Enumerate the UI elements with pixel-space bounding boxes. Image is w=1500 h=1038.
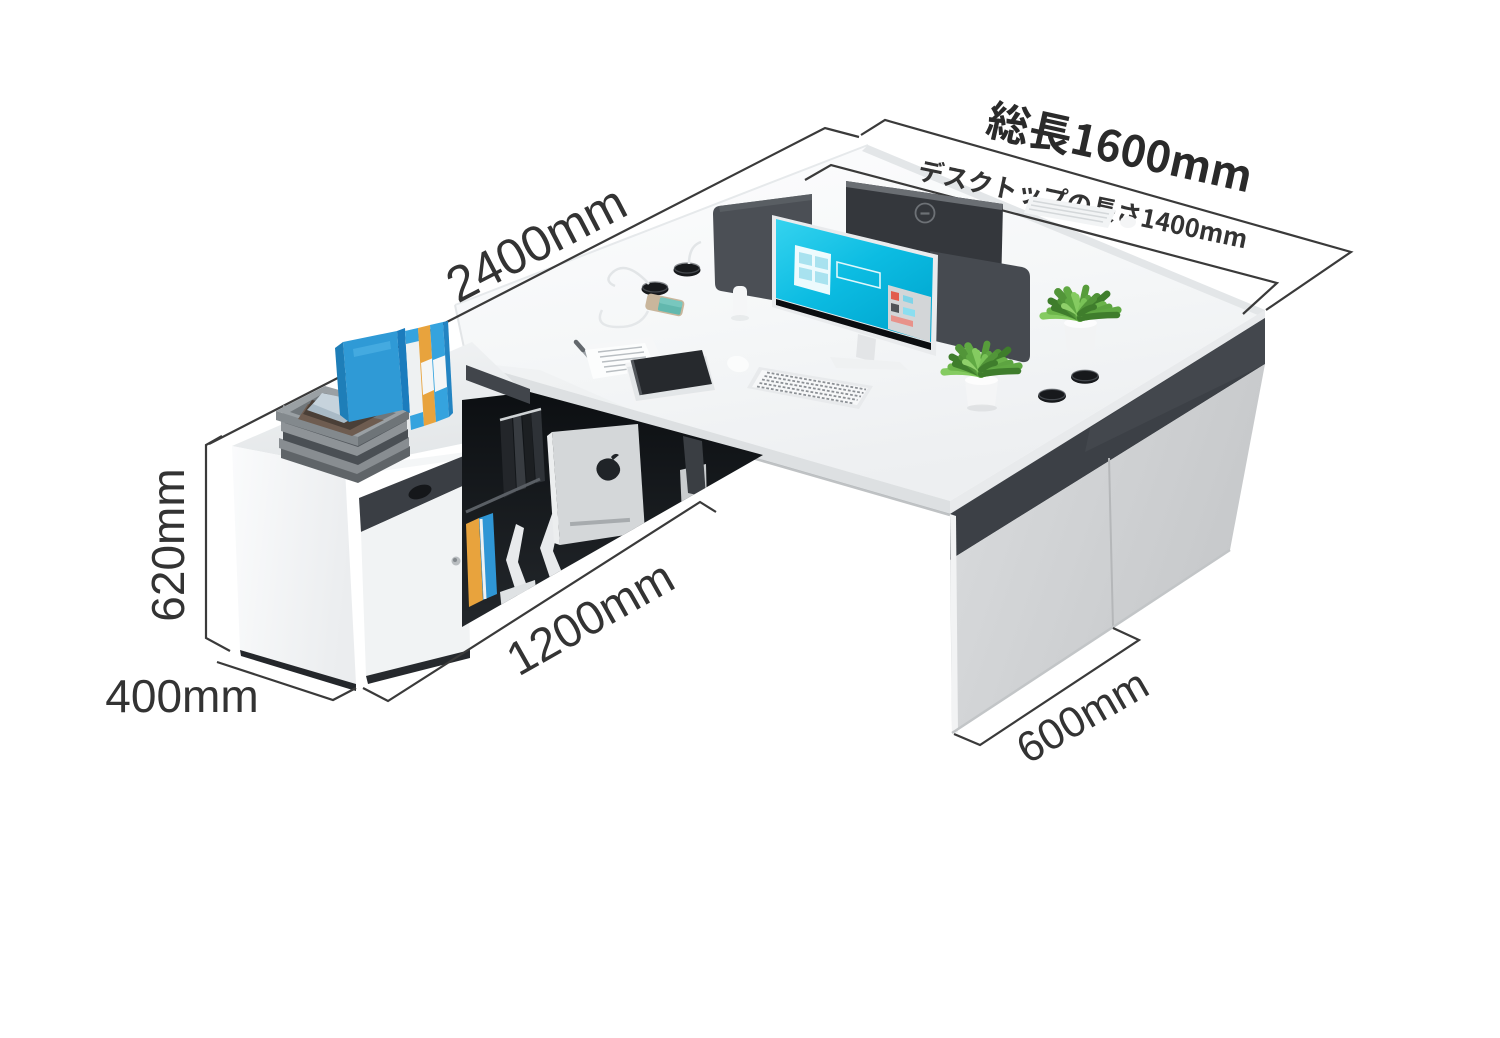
svg-text:400mm: 400mm bbox=[105, 670, 258, 722]
svg-text:620mm: 620mm bbox=[142, 468, 194, 621]
